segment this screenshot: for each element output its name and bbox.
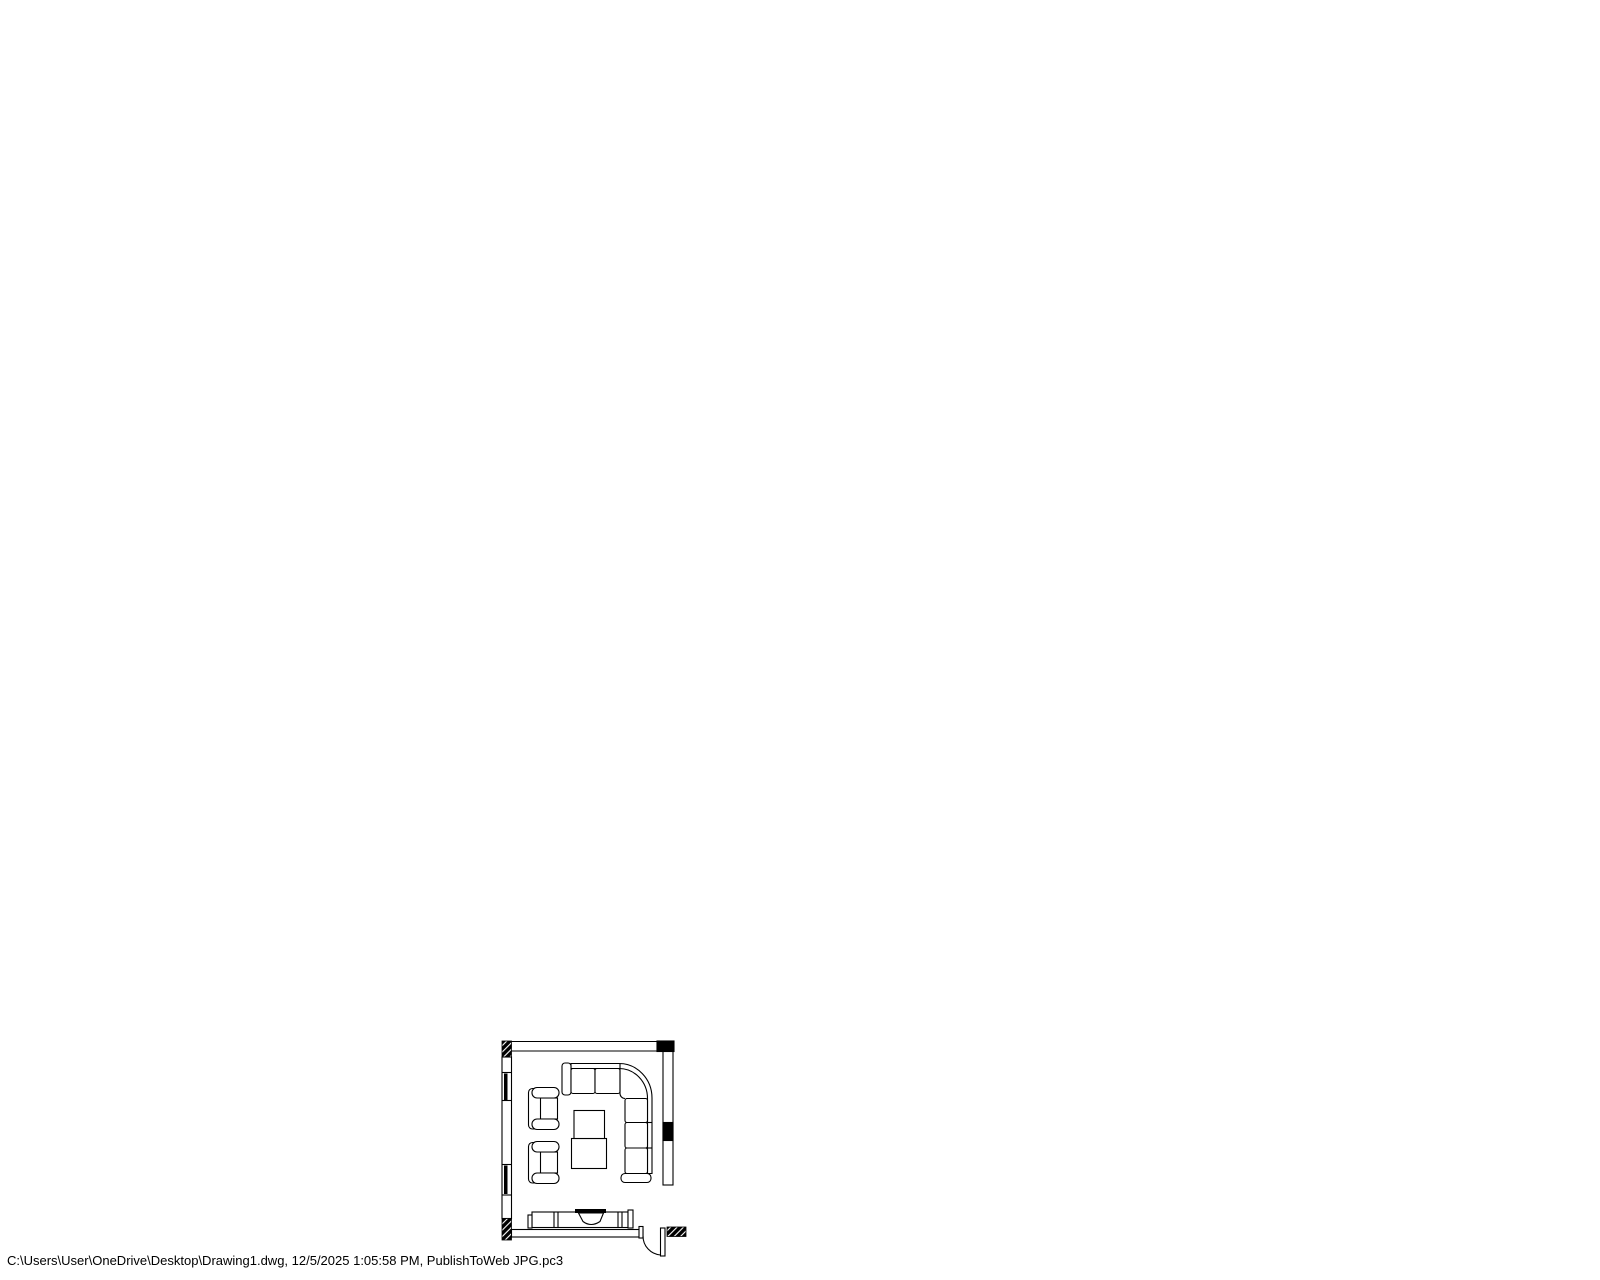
tv-screen-bar bbox=[575, 1209, 606, 1213]
cad-drawing-canvas bbox=[0, 0, 1600, 1280]
left-wall bbox=[502, 1057, 512, 1219]
solid-block-top-right bbox=[657, 1041, 674, 1052]
sofa-cushion-top-2 bbox=[595, 1069, 620, 1094]
door-swing-arc bbox=[643, 1236, 661, 1255]
armchair-lower bbox=[529, 1142, 560, 1184]
door-leaf bbox=[661, 1228, 666, 1256]
armchair-upper bbox=[529, 1088, 560, 1130]
plotted-sheet: C:\Users\User\OneDrive\Desktop\Drawing1.… bbox=[0, 0, 1600, 1280]
coffee-table bbox=[572, 1111, 607, 1169]
window-upper-left-wall bbox=[504, 1074, 508, 1101]
solid-block-right-wall bbox=[663, 1123, 673, 1141]
hatched-corner-column-bottom-left bbox=[502, 1219, 512, 1241]
hatched-corner-column-top-left bbox=[502, 1041, 512, 1057]
furniture bbox=[528, 1063, 652, 1228]
sofa-cushion-right-2 bbox=[625, 1123, 648, 1149]
door-bottom-right bbox=[643, 1227, 686, 1256]
hatched-door-jamb bbox=[667, 1227, 686, 1237]
top-wall bbox=[512, 1042, 675, 1052]
sofa-armrest-bottom bbox=[621, 1174, 651, 1183]
window-lower-left-wall bbox=[504, 1166, 508, 1195]
right-wall bbox=[663, 1052, 673, 1186]
sofa-cushion-right-1 bbox=[625, 1099, 648, 1123]
sofa-armrest-left bbox=[562, 1063, 571, 1095]
plot-stamp-text: C:\Users\User\OneDrive\Desktop\Drawing1.… bbox=[7, 1253, 563, 1268]
sofa-cushion-top-1 bbox=[571, 1069, 595, 1094]
tv-console bbox=[528, 1209, 633, 1228]
sofa-cushion-right-3 bbox=[625, 1148, 648, 1174]
